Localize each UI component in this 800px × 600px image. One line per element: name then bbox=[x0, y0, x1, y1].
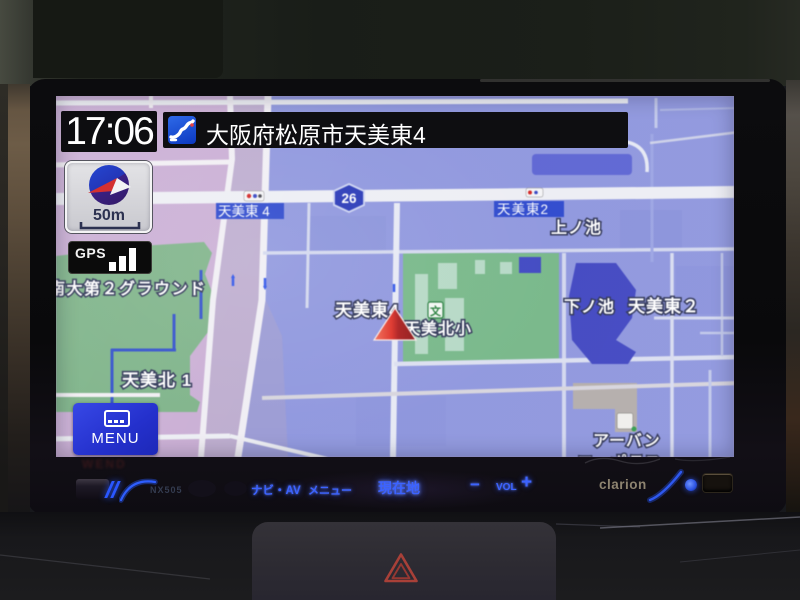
svg-text:50m: 50m bbox=[93, 207, 125, 224]
